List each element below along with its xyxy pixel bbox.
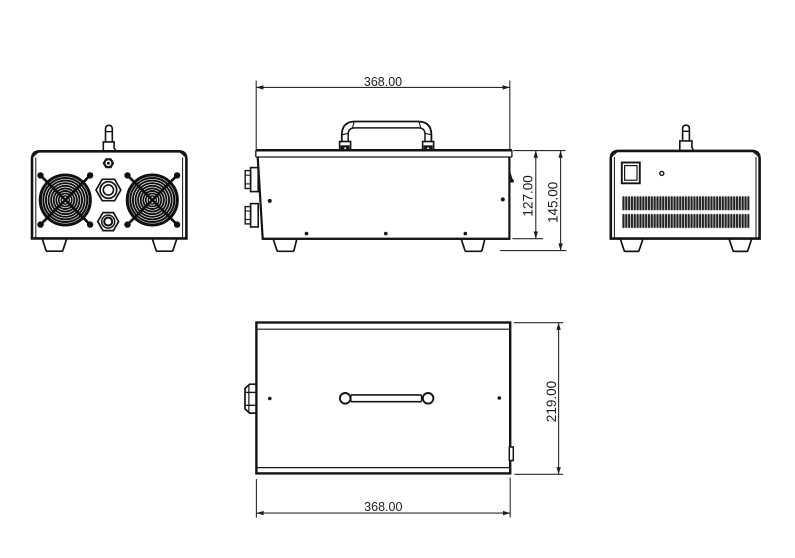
svg-text:127.00: 127.00 bbox=[521, 175, 536, 216]
svg-text:368.00: 368.00 bbox=[364, 500, 402, 514]
svg-text:368.00: 368.00 bbox=[364, 75, 402, 89]
svg-text:219.00: 219.00 bbox=[544, 381, 559, 422]
svg-text:145.00: 145.00 bbox=[545, 182, 560, 223]
